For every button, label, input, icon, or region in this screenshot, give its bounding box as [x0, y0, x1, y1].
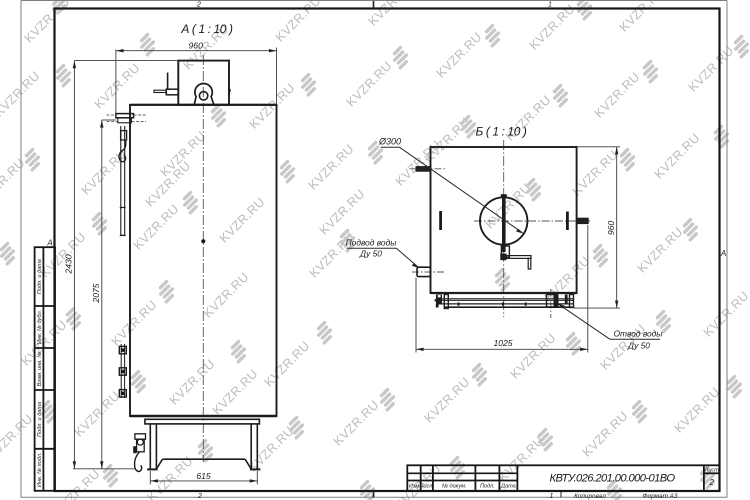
svg-text:Лист: Лист: [419, 484, 435, 490]
svg-text:2075: 2075: [91, 283, 101, 303]
svg-text:Подп. и дата: Подп. и дата: [37, 259, 43, 294]
svg-text:Лист: Лист: [703, 467, 719, 473]
svg-text:Б ( 1 : 10 ): Б ( 1 : 10 ): [475, 124, 526, 138]
svg-text:960: 960: [189, 41, 204, 51]
svg-text:Подп. и дата: Подп. и дата: [37, 402, 43, 437]
svg-text:1025: 1025: [493, 338, 512, 348]
svg-text:615: 615: [196, 471, 211, 481]
svg-text:1: 1: [550, 493, 554, 500]
svg-text:Ду 50: Ду 50: [359, 249, 382, 259]
svg-text:1: 1: [548, 2, 552, 9]
svg-text:2430: 2430: [64, 254, 74, 274]
svg-text:Взам. инв. №: Взам. инв. №: [37, 352, 43, 387]
svg-text:Отвод воды: Отвод воды: [614, 329, 663, 339]
svg-text:2: 2: [196, 2, 201, 9]
svg-text:Инв. № дубл.: Инв. № дубл.: [37, 310, 43, 344]
svg-text:А: А: [720, 249, 726, 258]
svg-text:№ докум.: № докум.: [442, 484, 467, 490]
svg-text:Ø300: Ø300: [378, 137, 401, 147]
svg-text:Ду 50: Ду 50: [627, 340, 650, 350]
svg-text:Копировал: Копировал: [574, 493, 606, 500]
svg-text:Формат А3: Формат А3: [643, 493, 678, 500]
svg-text:Изм: Изм: [409, 484, 420, 490]
svg-text:А ( 1 : 10 ): А ( 1 : 10 ): [180, 22, 233, 36]
svg-text:КВТУ.026.201.00.000-01ВО: КВТУ.026.201.00.000-01ВО: [550, 472, 676, 484]
svg-text:Подп.: Подп.: [480, 484, 495, 490]
svg-text:А: А: [46, 239, 52, 248]
svg-text:Дата: Дата: [500, 484, 516, 490]
svg-text:2: 2: [708, 478, 714, 487]
svg-text:Подвод воды: Подвод воды: [346, 238, 397, 248]
svg-text:Инв. № подл.: Инв. № подл.: [37, 452, 43, 487]
svg-text:960: 960: [606, 221, 616, 236]
svg-text:2: 2: [197, 493, 202, 500]
